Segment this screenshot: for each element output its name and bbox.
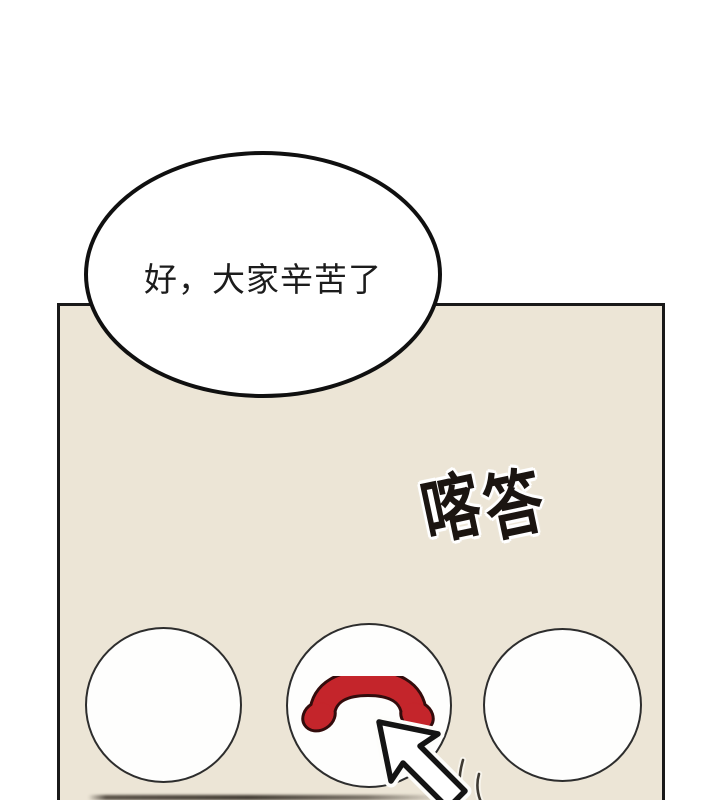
cursor-arrow-icon [370, 712, 480, 800]
sfx-click-text: 喀答 [412, 456, 551, 547]
call-button-left [85, 627, 242, 783]
speech-bubble: 好，大家辛苦了 [84, 151, 442, 398]
comic-page: 好，大家辛苦了 喀答 [0, 0, 720, 800]
sfx-char-1: 喀 [415, 467, 487, 550]
speech-bubble-text: 好，大家辛苦了 [144, 253, 382, 301]
call-button-right [483, 628, 642, 782]
